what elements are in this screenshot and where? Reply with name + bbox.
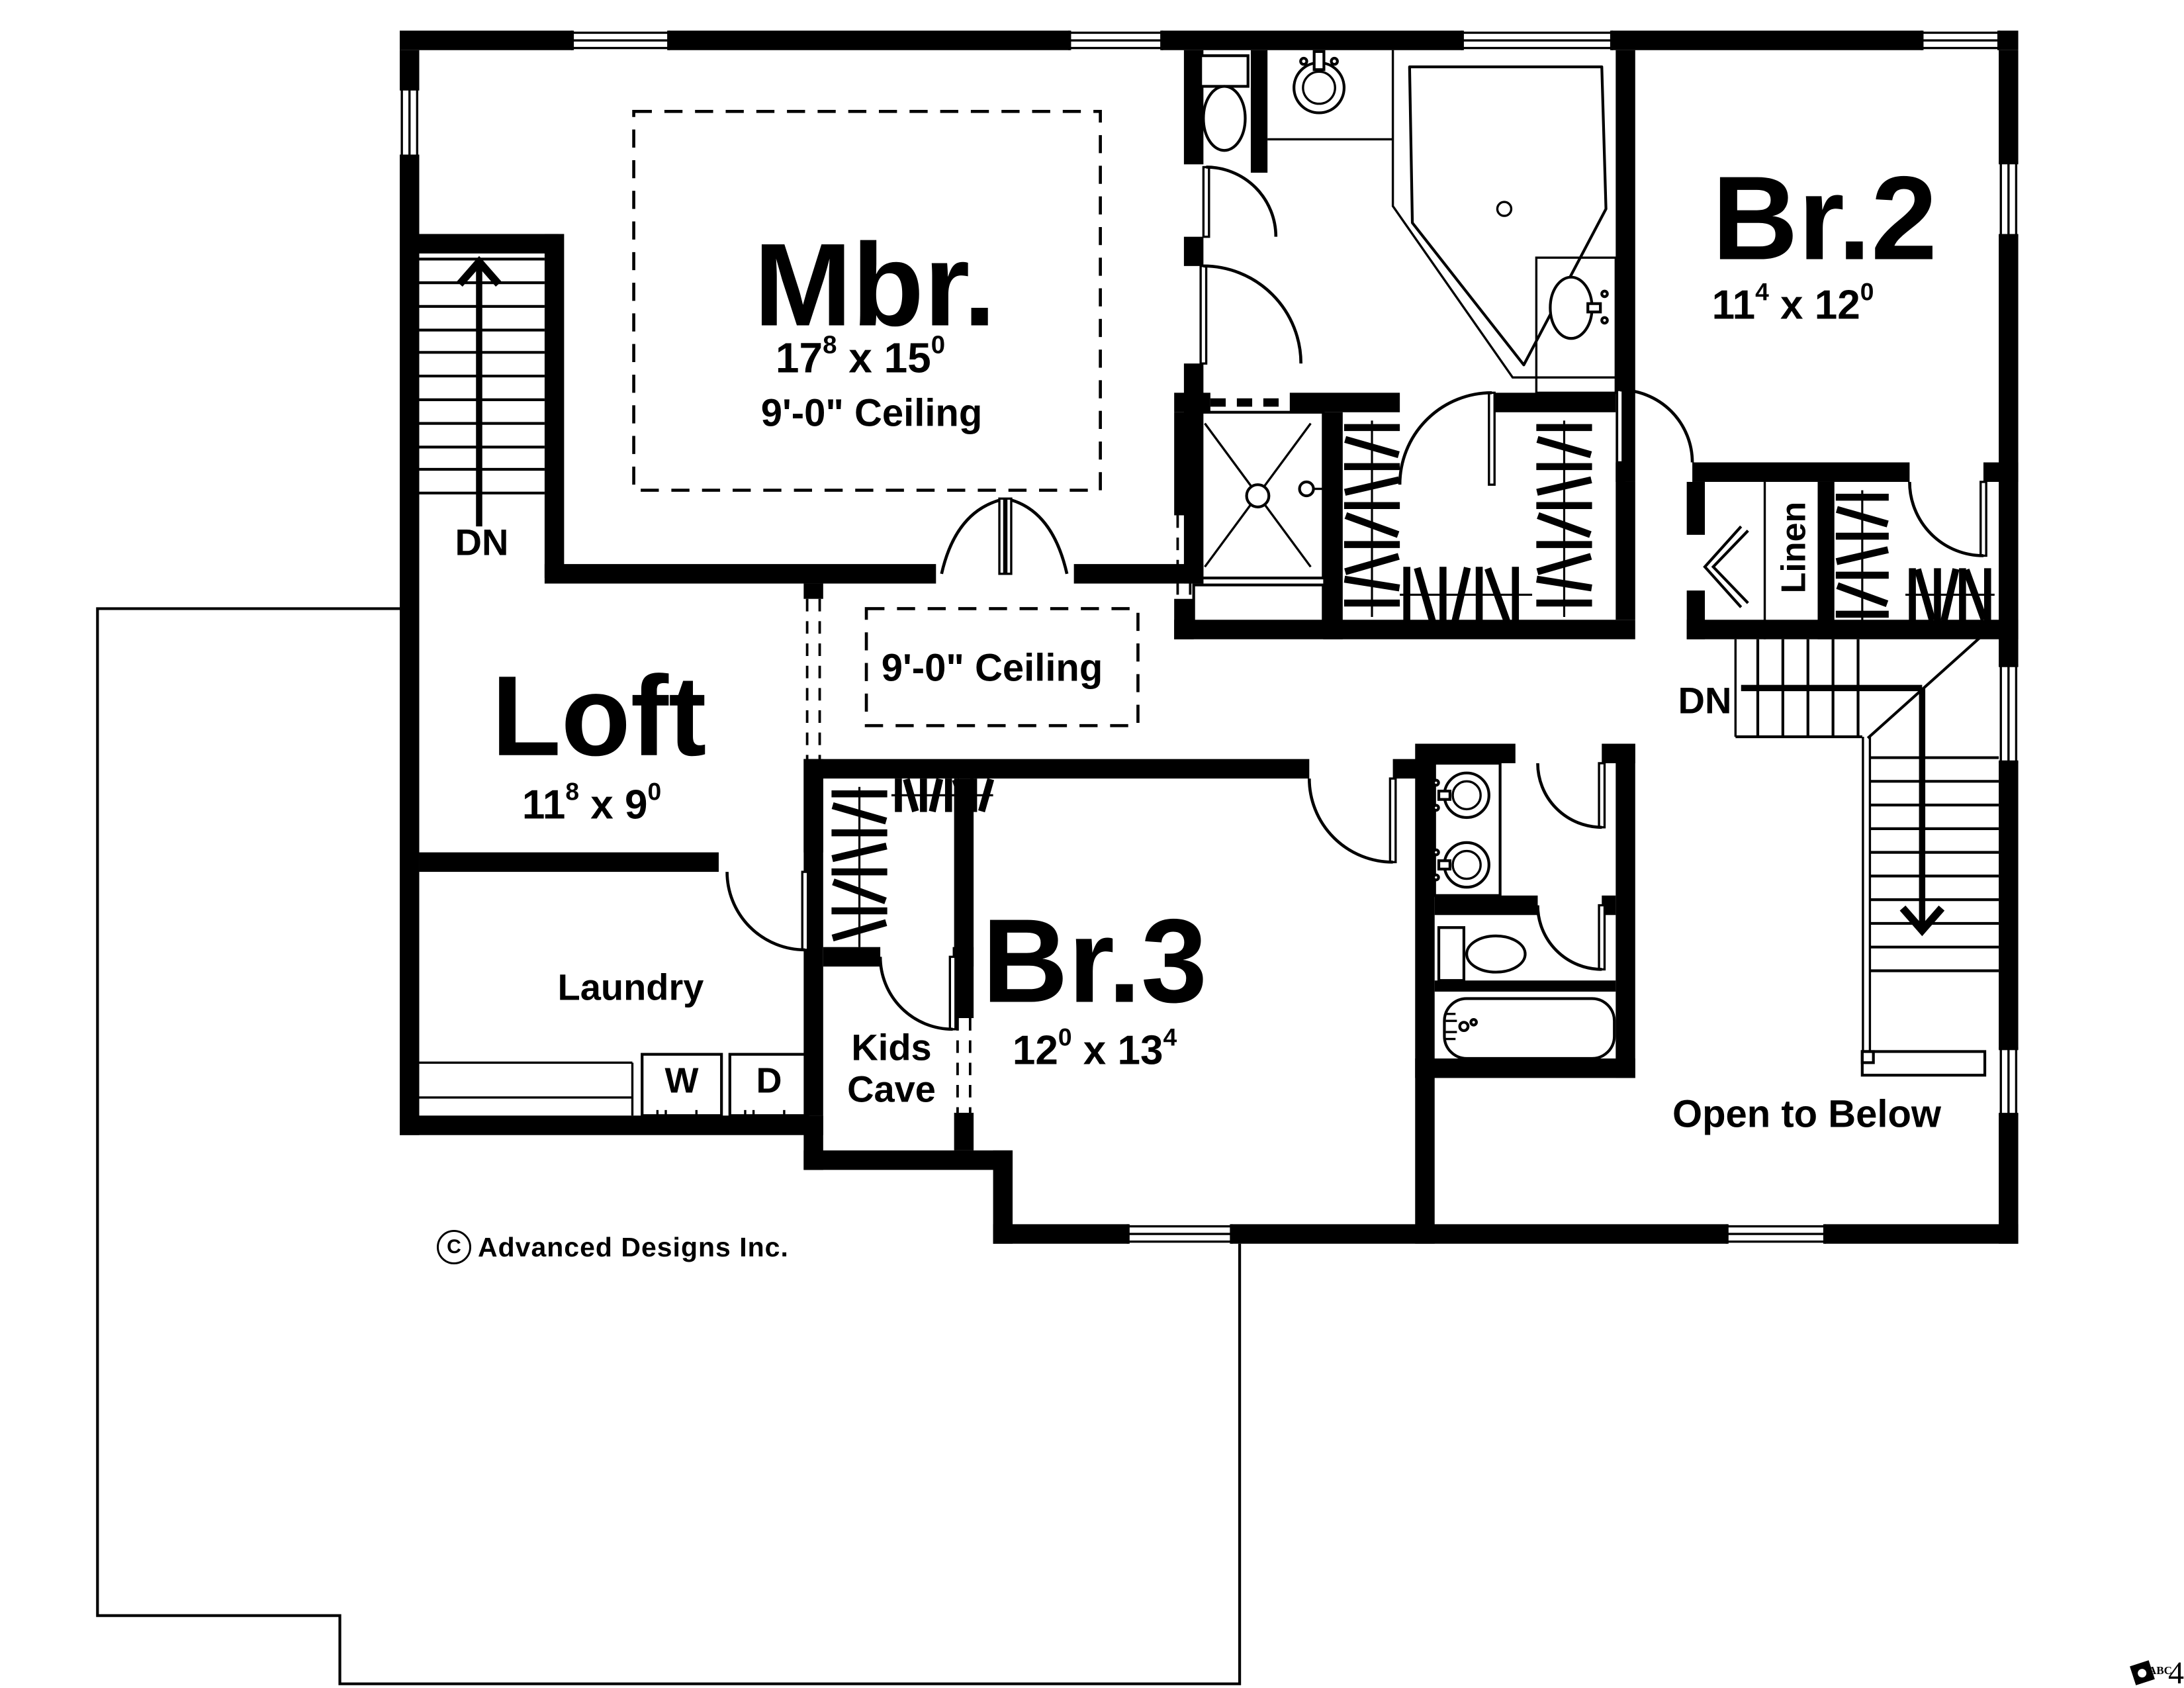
stair-treads-lower <box>1863 737 1999 1051</box>
door-swing-icon-hall-wc <box>1537 906 1604 970</box>
door-swing-icon-master-closet <box>1400 393 1494 485</box>
shower-icon <box>1194 412 1324 623</box>
closet-rod-icon <box>831 787 887 947</box>
room-dims-br2: 114 x 120 <box>1712 283 1874 326</box>
door-swing-icon-laundry <box>727 872 808 950</box>
stair-dn-label-right: DN <box>1678 682 1732 721</box>
kids-cave-line1: Kids <box>851 1026 931 1068</box>
room-name-loft: Loft <box>492 657 707 776</box>
room-dims-br3: 120 x 134 <box>1013 1029 1177 1072</box>
closet-rod-icon <box>1905 568 1995 621</box>
dryer-label: D <box>756 1062 782 1100</box>
door-swing-icon-wc <box>1203 167 1275 236</box>
copyright-text: Advanced Designs Inc. <box>478 1232 789 1263</box>
open-to-below-note: Open to Below <box>1672 1095 1941 1135</box>
door-swing-icon-br2-closet <box>1909 482 1986 556</box>
door-swing-icon-mbr-double <box>942 498 1067 574</box>
door-bifold-icon-linen <box>1705 526 1748 607</box>
stairs-up-arrow-icon <box>460 262 499 527</box>
door-swing-icon-hall-bath <box>1537 763 1604 827</box>
laundry-counter <box>419 1062 632 1115</box>
window-icon <box>400 89 419 156</box>
window-icon <box>1999 666 2018 762</box>
stairs-right <box>1735 630 1999 1075</box>
copyright-symbol-icon: C <box>437 1230 471 1264</box>
stair-break-line <box>1868 630 1989 738</box>
room-dims-loft: 118 x 90 <box>522 783 661 826</box>
window-icon <box>1999 1049 2018 1114</box>
floor-plan-sheet: Mbr. 178 x 150 9'-0" Ceiling Loft 118 x … <box>0 0 2184 1688</box>
room-name-br3: Br.3 <box>982 899 1207 1024</box>
vanity-sink-icon <box>1267 52 1392 140</box>
bathtub-icon <box>1444 999 1614 1058</box>
closet-rod-icon <box>891 778 993 812</box>
washer-label: W <box>665 1062 699 1100</box>
door-swing-icon-kids-closet <box>880 957 956 1029</box>
window-icon <box>1069 30 1161 50</box>
stairs-down-arrow-icon <box>1741 688 1942 930</box>
closet-rod-icon <box>1344 420 1400 617</box>
room-name-kids-cave: KidsCave <box>847 1027 936 1109</box>
window-icon <box>1128 1224 1232 1243</box>
room-name-mbr: Mbr. <box>754 224 996 348</box>
toilet-icon <box>1201 56 1248 150</box>
stair-dn-label-left: DN <box>455 524 509 563</box>
room-name-laundry: Laundry <box>558 968 704 1008</box>
kids-cave-line2: Cave <box>847 1068 936 1109</box>
stamp-page-number: 4 <box>2168 1657 2184 1688</box>
room-name-br2: Br.2 <box>1712 156 1937 281</box>
ceiling-note-hall: 9'-0" Ceiling <box>882 649 1103 689</box>
window-icon <box>1727 1224 1825 1243</box>
window-icon <box>1463 30 1612 50</box>
stair-landing <box>1862 1051 1985 1075</box>
double-vanity-icon <box>1433 763 1500 896</box>
closet-rod-icon <box>1400 567 1532 622</box>
stairs-left <box>419 259 544 526</box>
toilet-icon <box>1439 927 1525 980</box>
window-icon <box>1922 30 1999 50</box>
room-dims-mbr: 178 x 150 <box>776 336 945 380</box>
ceiling-note-mbr: 9'-0" Ceiling <box>761 394 983 434</box>
room-name-linen: Linen <box>1776 502 1813 594</box>
copyright: C Advanced Designs Inc. <box>437 1230 789 1264</box>
door-swing-icon-master-bath-entry <box>1201 266 1301 363</box>
closet-rod-icon <box>1536 420 1592 617</box>
closet-rod-icon <box>1836 491 1889 634</box>
window-icon <box>572 30 668 50</box>
window-icon <box>1999 163 2018 235</box>
door-swing-icon-br3 <box>1309 778 1395 862</box>
